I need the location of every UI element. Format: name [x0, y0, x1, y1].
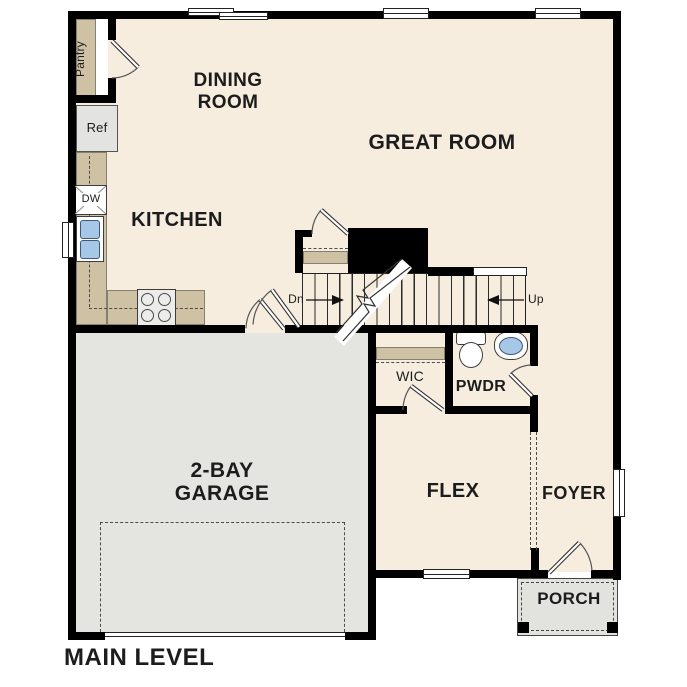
stair-closet-wall — [295, 230, 303, 273]
window — [423, 569, 470, 579]
porch-post — [518, 622, 529, 633]
window — [613, 469, 625, 517]
pwdr-wall-bottom — [445, 406, 530, 414]
stove-burner — [141, 309, 154, 322]
closet-shelf-line — [303, 248, 348, 249]
staircase-treads — [302, 273, 526, 325]
stair-closet-shelf — [303, 251, 348, 264]
dishwasher-label: DW — [79, 193, 103, 206]
pwdr-wall-right — [530, 333, 538, 366]
pantry-interior — [96, 19, 108, 96]
floor-plan: DINING ROOM GREAT ROOM KITCHEN 2-BAY GAR… — [0, 0, 687, 687]
sink-basin — [80, 240, 100, 259]
foyer-wall-bottom — [591, 570, 621, 578]
stair-chase-block — [348, 228, 428, 273]
flex-foyer-wall-stub — [531, 548, 539, 572]
wic-label: WIC — [372, 368, 448, 384]
powder-sink-basin — [499, 337, 523, 355]
garage-wall-bottom — [68, 632, 105, 640]
pantry-wall — [108, 19, 116, 40]
wic-shelf-line — [376, 362, 445, 363]
flex-wall-bottom — [375, 570, 423, 578]
garage-door-line — [105, 636, 345, 637]
dining-room-label: DINING — [148, 70, 308, 92]
pwdr-wall-right — [530, 395, 538, 432]
garage-door-swing-outline — [100, 522, 345, 632]
porch-post — [607, 622, 618, 633]
stove-burner — [158, 309, 171, 322]
stairs-down-label: Dn — [284, 293, 308, 307]
window — [383, 8, 429, 19]
great-room-label: GREAT ROOM — [322, 131, 562, 155]
kitchen-label: KITCHEN — [97, 209, 257, 232]
pantry-wall-bottom — [76, 95, 116, 103]
page-title: MAIN LEVEL — [64, 644, 344, 672]
wic-shelf — [376, 347, 445, 360]
window — [219, 12, 268, 20]
toilet-bowl — [459, 342, 483, 368]
garage-label: GARAGE — [122, 482, 322, 506]
stair-railing — [473, 267, 527, 276]
stove-burner — [158, 293, 171, 306]
stair-wall-bottom — [285, 325, 538, 333]
flex-label: FLEX — [383, 480, 523, 503]
garage-wall-top — [68, 325, 245, 333]
porch-label: PORCH — [519, 589, 619, 609]
window — [62, 222, 74, 258]
dining-room-label: ROOM — [148, 92, 308, 114]
stair-half-wall — [428, 267, 473, 276]
pantry-wall — [108, 78, 116, 95]
stairs-up-label: Up — [528, 293, 556, 307]
refrigerator-label: Ref — [76, 121, 118, 136]
foyer-label: FOYER — [534, 483, 614, 504]
garage-label: 2-BAY — [122, 459, 322, 483]
stove-burner — [141, 293, 154, 306]
garage-door — [105, 632, 345, 640]
pantry-label: Pantry — [74, 28, 96, 90]
garage-wall-bottom — [345, 632, 376, 640]
wic-wall-bottom — [368, 406, 407, 414]
window — [535, 8, 581, 19]
